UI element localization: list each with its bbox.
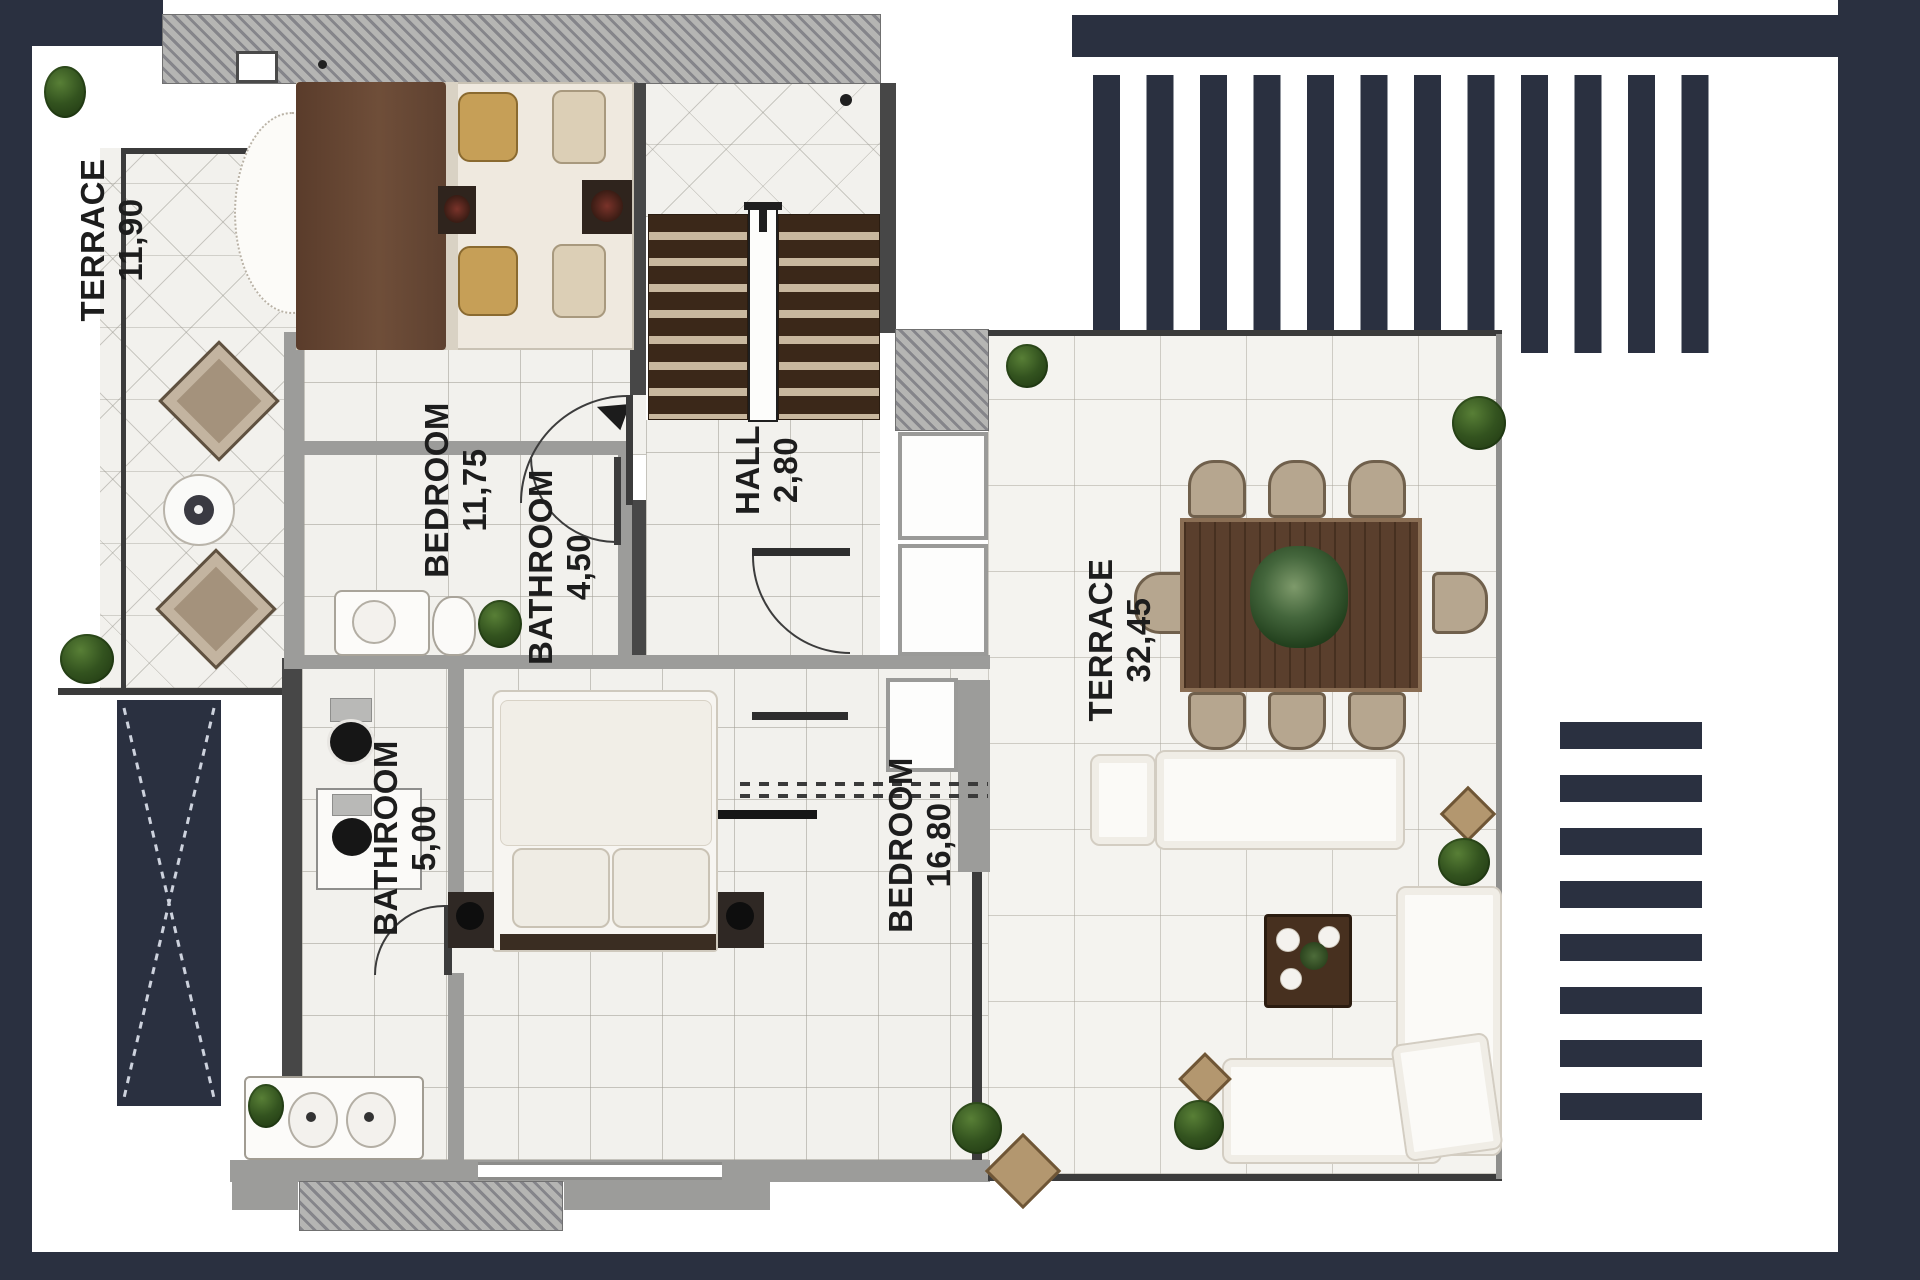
label-bathroom-low: BATHROOM 5,00 (367, 740, 443, 936)
dining-chair-top-3 (1348, 460, 1406, 518)
pergola-right-louvers (1560, 722, 1702, 1120)
label-terrace-left-area: 11,90 (112, 158, 150, 321)
bed-low-pillow-right (612, 848, 710, 928)
label-bathroom-top-name: BATHROOM (522, 469, 559, 665)
stoop-left (232, 1182, 298, 1210)
wall-north-dot (318, 60, 327, 69)
bed-low-lamp-right (726, 902, 754, 930)
sofa-top (1155, 750, 1405, 850)
wall-west-upper (284, 332, 304, 658)
label-bedroom-low-area: 16,80 (920, 757, 958, 933)
label-bedroom-top-area: 11,75 (456, 402, 494, 578)
wall-east-gray-block (958, 680, 990, 872)
awning-cross-panel (117, 700, 221, 1106)
dining-chair-bottom-2 (1268, 692, 1326, 750)
label-bathroom-top-area: 4,50 (560, 469, 598, 665)
label-hall-name: HALL (729, 425, 766, 515)
landing-dot (840, 94, 852, 106)
bath-low-plant (248, 1084, 284, 1128)
nightstand-head-lamp (591, 190, 623, 222)
sofa-corner-chaise (1390, 1032, 1503, 1162)
wall-north-window-detail (236, 51, 278, 83)
stair-handle-stem (759, 202, 767, 232)
window-south (478, 1162, 722, 1180)
label-hall-area: 2,80 (767, 425, 805, 515)
bed-top-pillow-4 (552, 244, 606, 318)
bath-low-tank-1 (330, 698, 372, 722)
hall-door-leaf (752, 548, 850, 556)
frame-right-panel (1838, 0, 1920, 1252)
stair-flight-left (648, 214, 748, 420)
nightstand-mid-lamp (444, 195, 470, 223)
plant-sofa-a (1438, 838, 1490, 886)
dining-chair-top-1 (1188, 460, 1246, 518)
plant-terrace-left-top (44, 66, 86, 118)
label-bathroom-top: BATHROOM 4,50 (522, 469, 598, 665)
label-terrace-right-name: TERRACE (1082, 558, 1119, 721)
plant-terrace-right-bottom (952, 1102, 1002, 1154)
dining-chair-bottom-1 (1188, 692, 1246, 750)
bed-top-pillow-2 (458, 246, 518, 316)
coffee-table-cup-1 (1276, 928, 1300, 952)
bed-low-lamp-left (456, 902, 484, 930)
label-terrace-left-name: TERRACE (74, 158, 111, 321)
coffee-table-cup-3 (1280, 968, 1302, 990)
frame-left-bar (0, 0, 32, 1280)
plant-terrace-right-corner (1006, 344, 1048, 388)
label-bedroom-low: BEDROOM 16,80 (882, 757, 958, 933)
label-bathroom-low-name: BATHROOM (367, 740, 404, 936)
pergola-top-louvers (1093, 75, 1709, 353)
armchair-left (1090, 754, 1156, 846)
window-east-2 (898, 544, 988, 656)
plant-sofa-b (1174, 1100, 1224, 1150)
bed-top-duvet (296, 82, 446, 350)
stoop-right (564, 1182, 770, 1210)
frame-bottom-bar (0, 1252, 1920, 1280)
label-terrace-right: TERRACE 32,45 (1082, 558, 1158, 721)
bed-low-pillow-left (512, 848, 610, 928)
label-bedroom-top: BEDROOM 11,75 (418, 402, 494, 578)
wall-bath5-divider-a (448, 669, 464, 907)
bath-top-plant (478, 600, 522, 648)
plant-terrace-right-top (1452, 396, 1506, 450)
dining-chair-right (1432, 572, 1488, 634)
bed-top-pillow-3 (552, 90, 606, 164)
label-bedroom-top-name: BEDROOM (418, 402, 455, 578)
label-hall: HALL 2,80 (729, 425, 805, 515)
plant-terrace-left-bottom (60, 634, 114, 684)
wall-stairs-west-b (630, 500, 646, 658)
wall-hall-terrace-hatched (896, 330, 988, 430)
bath-low-toilet-1 (330, 722, 372, 762)
bath-top-toilet (432, 596, 476, 656)
wall-stairs-east (880, 83, 896, 333)
label-bathroom-low-area: 5,00 (405, 740, 443, 936)
frame-top-left-bar (32, 0, 163, 46)
stoop-hatched (300, 1182, 562, 1230)
label-terrace-right-area: 32,45 (1120, 558, 1158, 721)
bed-low-blanket (500, 700, 712, 846)
stair-stringer (748, 206, 778, 422)
bed-top-pillow-1 (458, 92, 518, 162)
bath-top-sink (352, 600, 396, 644)
bath-low-tank-2 (332, 794, 372, 816)
hall-door-leaf-2 (752, 712, 848, 720)
bed-low-headboard (500, 934, 716, 950)
terrace-right-wall-south (988, 1174, 1502, 1181)
bath-low-faucet-1 (306, 1112, 316, 1122)
label-bedroom-low-name: BEDROOM (882, 757, 919, 933)
label-terrace-left: TERRACE 11,90 (74, 158, 150, 321)
coffee-table-sprig (1300, 942, 1328, 970)
bath-low-toilet-2 (332, 818, 372, 856)
window-east-1 (898, 432, 988, 540)
side-table-cup (194, 505, 203, 514)
frame-top-right-bar (1072, 15, 1838, 57)
stair-flight-right (778, 214, 880, 420)
terrace-right-wall-north (988, 330, 1502, 336)
dining-chair-top-2 (1268, 460, 1326, 518)
dining-chair-bottom-3 (1348, 692, 1406, 750)
floor-plan: TERRACE 11,90 BEDROOM 11,75 HALL 2,80 BA… (0, 0, 1920, 1280)
bath-low-faucet-2 (364, 1112, 374, 1122)
awning-x-braces (117, 700, 221, 1106)
dining-centerpiece-plant (1250, 546, 1348, 648)
wall-bath5-divider-b (448, 973, 464, 1160)
wall-mid-horizontal (284, 655, 990, 669)
